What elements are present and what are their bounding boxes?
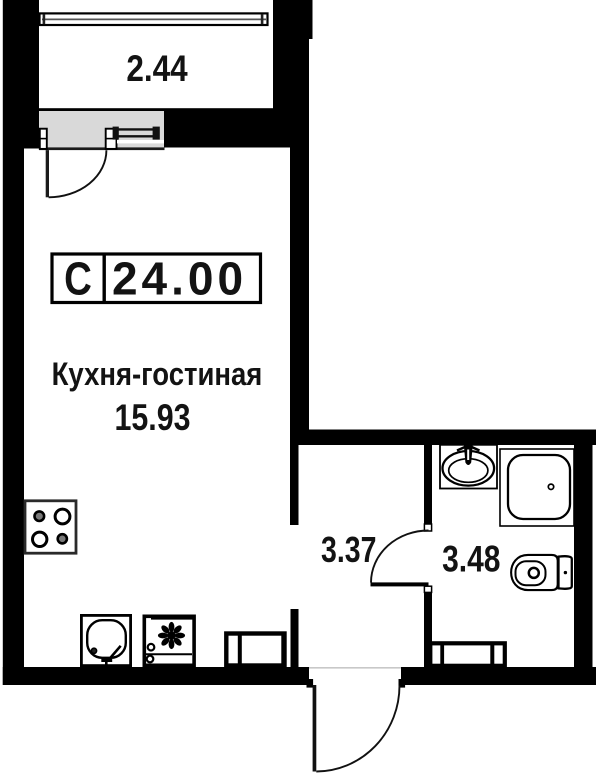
svg-text:15.93: 15.93 (115, 397, 191, 439)
svg-text:3.37: 3.37 (321, 529, 376, 570)
svg-text:2.44: 2.44 (126, 49, 188, 90)
svg-text:С: С (64, 253, 92, 304)
svg-text:3.48: 3.48 (442, 538, 500, 580)
svg-text:Кухня-гостиная: Кухня-гостиная (52, 357, 263, 392)
svg-text:24.00: 24.00 (112, 253, 247, 305)
